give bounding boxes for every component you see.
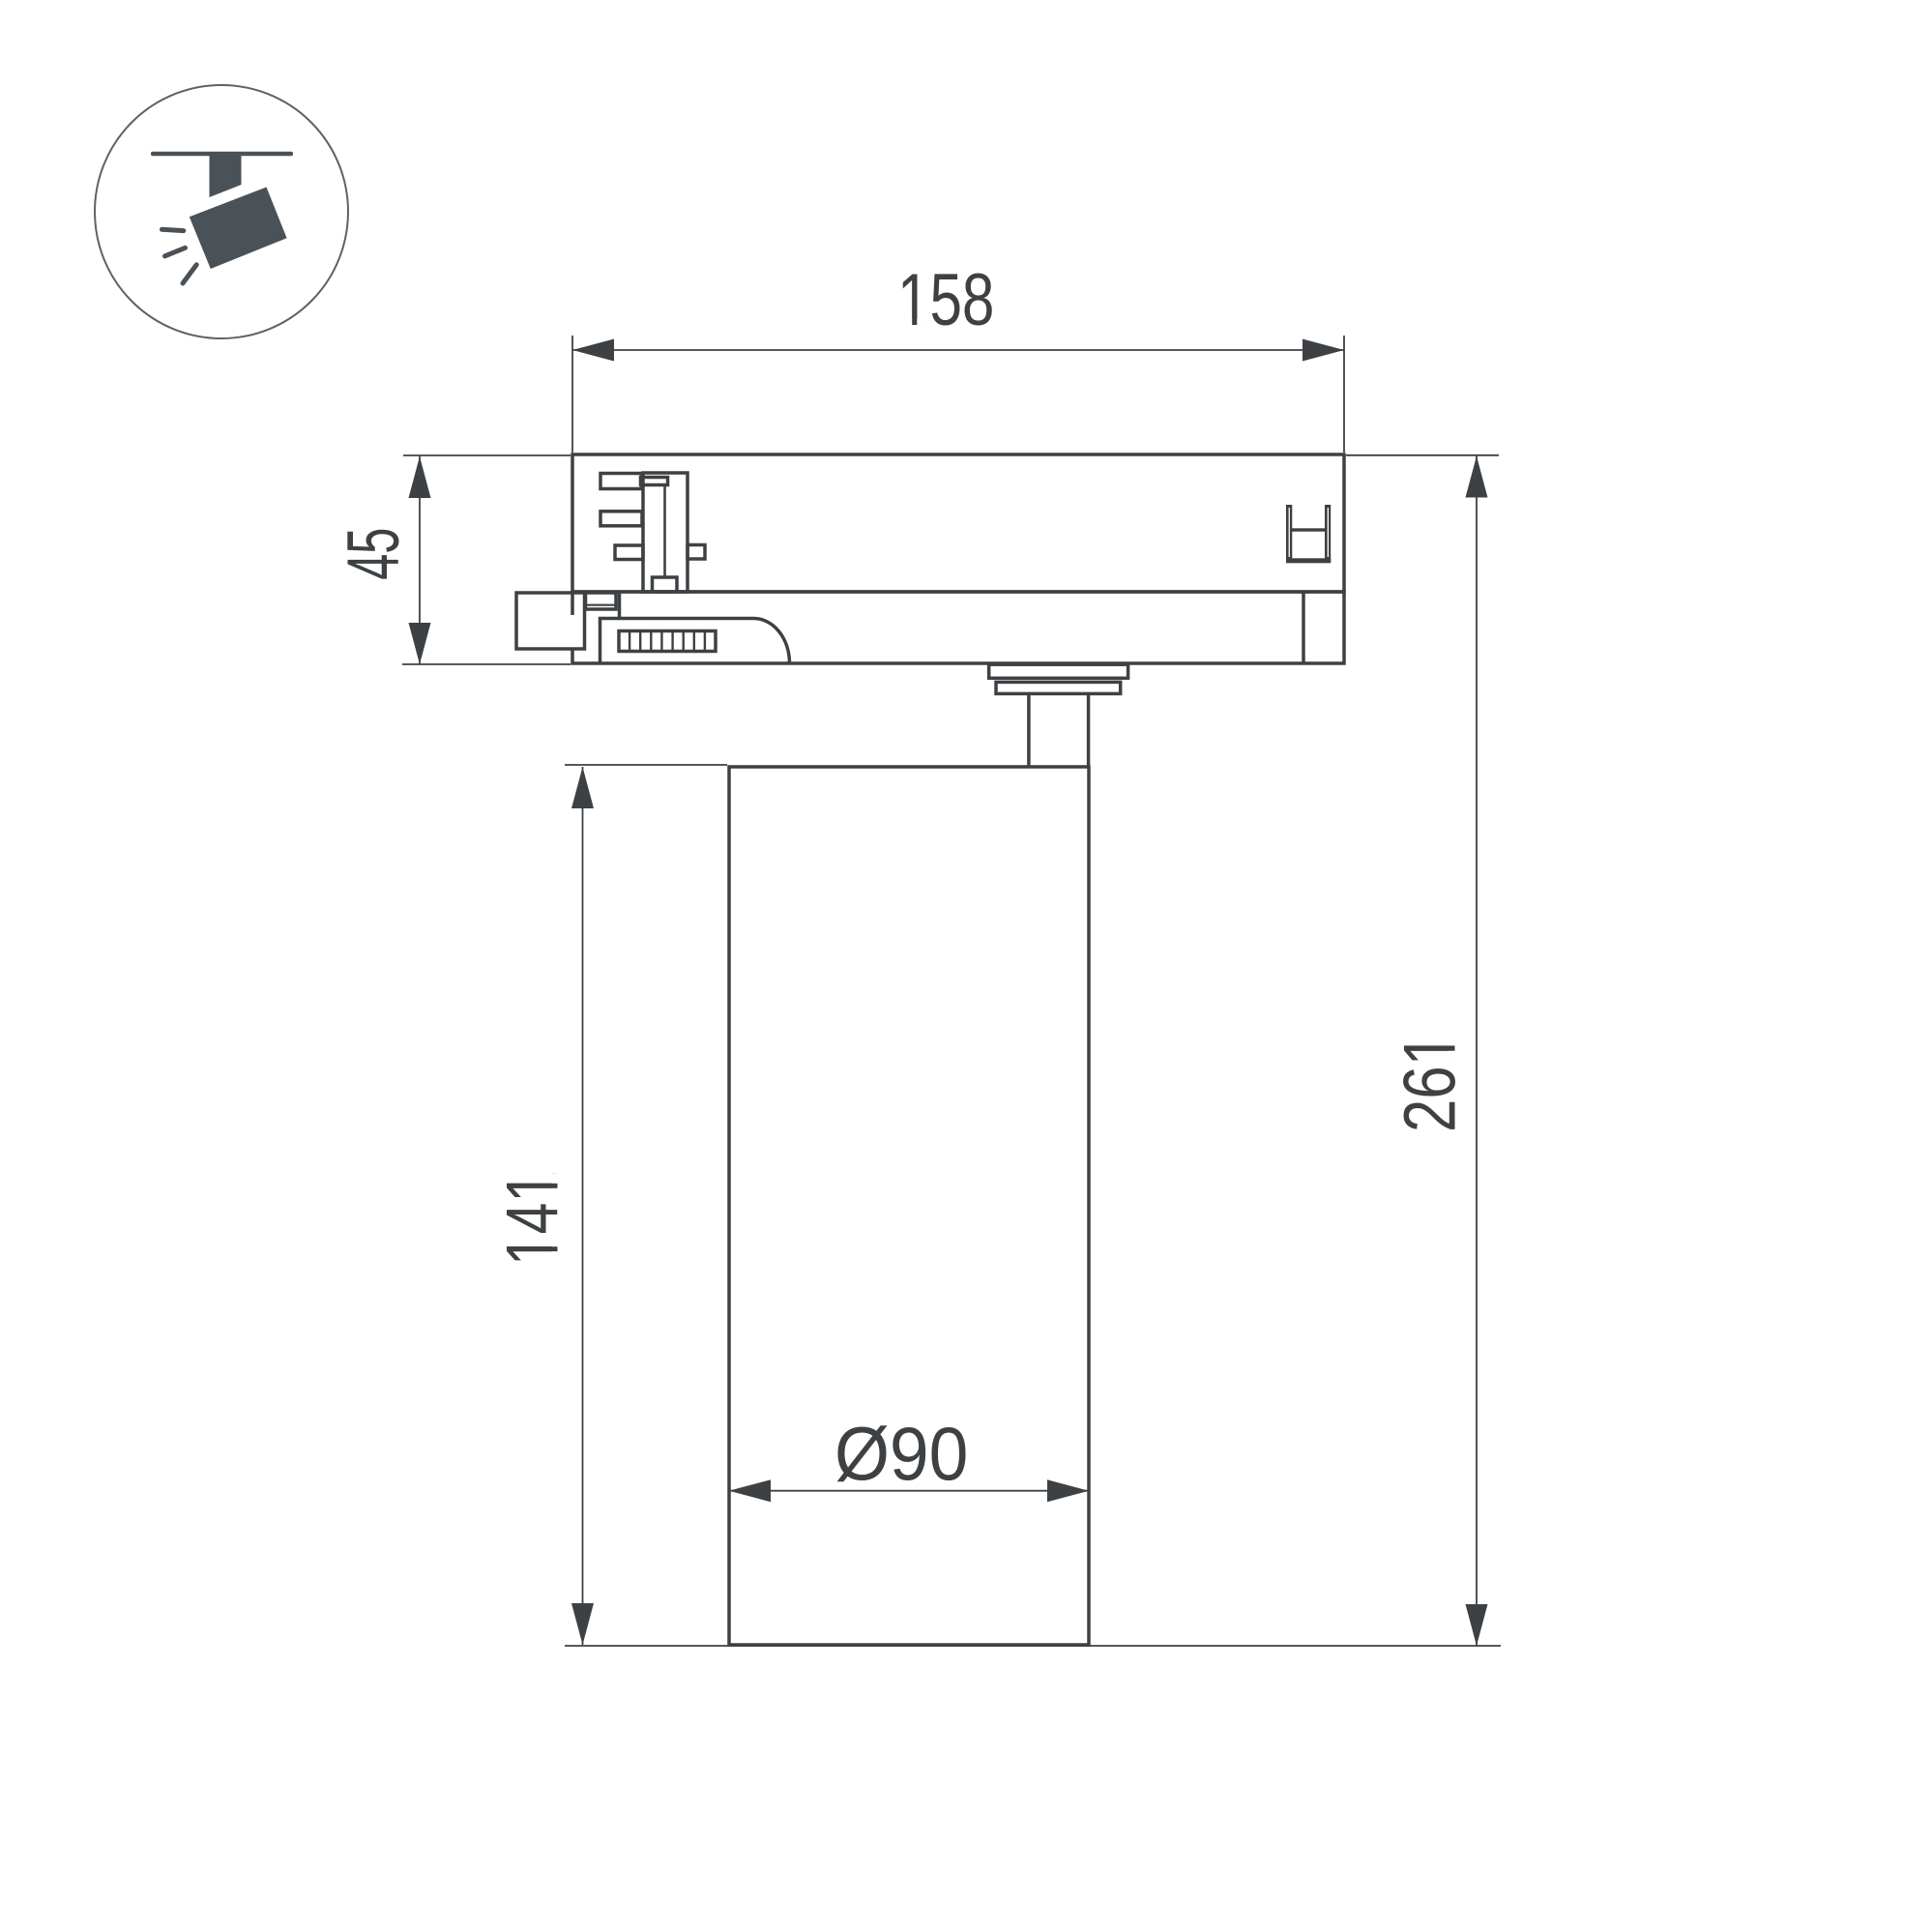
svg-text:45: 45	[333, 528, 415, 580]
svg-text:Ø90: Ø90	[834, 1411, 969, 1496]
svg-text:261: 261	[1390, 1033, 1472, 1132]
svg-text:158: 158	[897, 259, 995, 341]
svg-text:141: 141	[492, 1171, 574, 1266]
